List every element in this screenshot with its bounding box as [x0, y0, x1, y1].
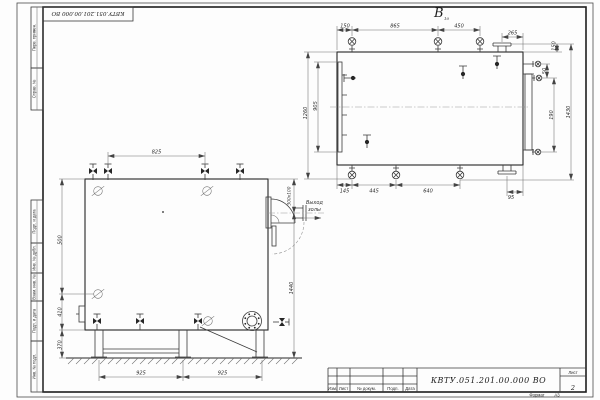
dim-b-left-905: 905	[313, 101, 319, 111]
margin-label-inv-dubl: Инв. № дубл.	[32, 245, 37, 270]
ash-outlet-label-line1: Выход	[306, 200, 323, 206]
dim-f-bottom-925a: 925	[136, 371, 146, 377]
dim-b-bottom-95: 95	[508, 195, 514, 201]
dim-f-left-370: 370	[58, 340, 64, 350]
top-stamp: КВТУ.051.201.00.000 ВО	[43, 7, 133, 21]
dim-f-left-500: 500	[58, 235, 64, 245]
front-view-drawing: Выход золы 825 500 410 370 300х100 1440 …	[58, 150, 325, 382]
dim-b-flange-offset: 265	[508, 31, 518, 37]
dim-f-top-825: 825	[152, 150, 162, 156]
dim-f-left-410: 410	[58, 307, 64, 317]
tb-col-data: Дата	[405, 386, 415, 391]
dim-b-right-1430: 1430	[566, 106, 572, 119]
dim-f-bottom-925b: 925	[218, 371, 228, 377]
dim-b-top-450: 450	[454, 24, 464, 30]
dim-b-top-150: 150	[340, 24, 350, 30]
dim-b-bottom-445: 445	[369, 189, 379, 195]
drawing-sheet: Перв. примен. Справ. № Подп. и дата Инв.…	[0, 0, 600, 400]
dim-b-flange-height: 150	[552, 41, 558, 51]
dim-f-outlet-height: 1440	[289, 282, 295, 295]
tb-format-value: А3	[554, 393, 560, 398]
tb-col-dokum: № докум.	[357, 386, 376, 391]
view-b-label-sub: 10	[444, 16, 450, 21]
tb-sheet-number: 2	[570, 384, 575, 392]
dim-b-bottom-640: 640	[423, 189, 433, 195]
dim-b-right-190: 190	[549, 110, 555, 120]
drawing-canvas: Перв. примен. Справ. № Подп. и дата Инв.…	[0, 0, 600, 400]
margin-label-perv-primen: Перв. примен.	[32, 24, 37, 51]
dim-f-outlet-section: 300х100	[287, 186, 293, 205]
view-b-label: В	[433, 6, 444, 21]
stamp-code-text: КВТУ.051.201.00.000 ВО	[51, 10, 125, 16]
tb-format-label: Формат	[529, 393, 544, 398]
tb-sheet-label: Лист	[568, 370, 577, 375]
dim-b-top-865: 865	[390, 24, 400, 30]
margin-label-inv-podl: Инв. № подл.	[32, 354, 37, 380]
tb-col-izm: Изм.	[328, 386, 337, 391]
dim-b-bottom-145: 145	[340, 189, 350, 195]
margin-label-podp-data-2: Подп. и дата	[32, 308, 37, 333]
left-margin-boxes: Перв. примен. Справ. № Подп. и дата Инв.…	[31, 7, 43, 392]
tb-col-podp: Подп.	[387, 386, 398, 391]
tb-doc-number: КВТУ.051.201.00.000 ВО	[430, 376, 546, 385]
title-block: Изм. Лист № докум. Подп. Дата КВТУ.051.2…	[328, 368, 586, 398]
margin-label-podp-data-1: Подп. и дата	[32, 209, 37, 234]
dim-b-left-1260: 1260	[303, 107, 309, 120]
view-b-drawing: В 10 150 865	[303, 6, 574, 201]
margin-label-sprav-no: Справ. №	[32, 79, 37, 98]
margin-label-vzam-inv: Взам. инв. №	[32, 274, 37, 300]
ash-outlet-label-line2: золы	[308, 207, 321, 213]
dim-b-right-50: 50	[542, 68, 548, 74]
tb-col-list: Лист	[339, 386, 348, 391]
